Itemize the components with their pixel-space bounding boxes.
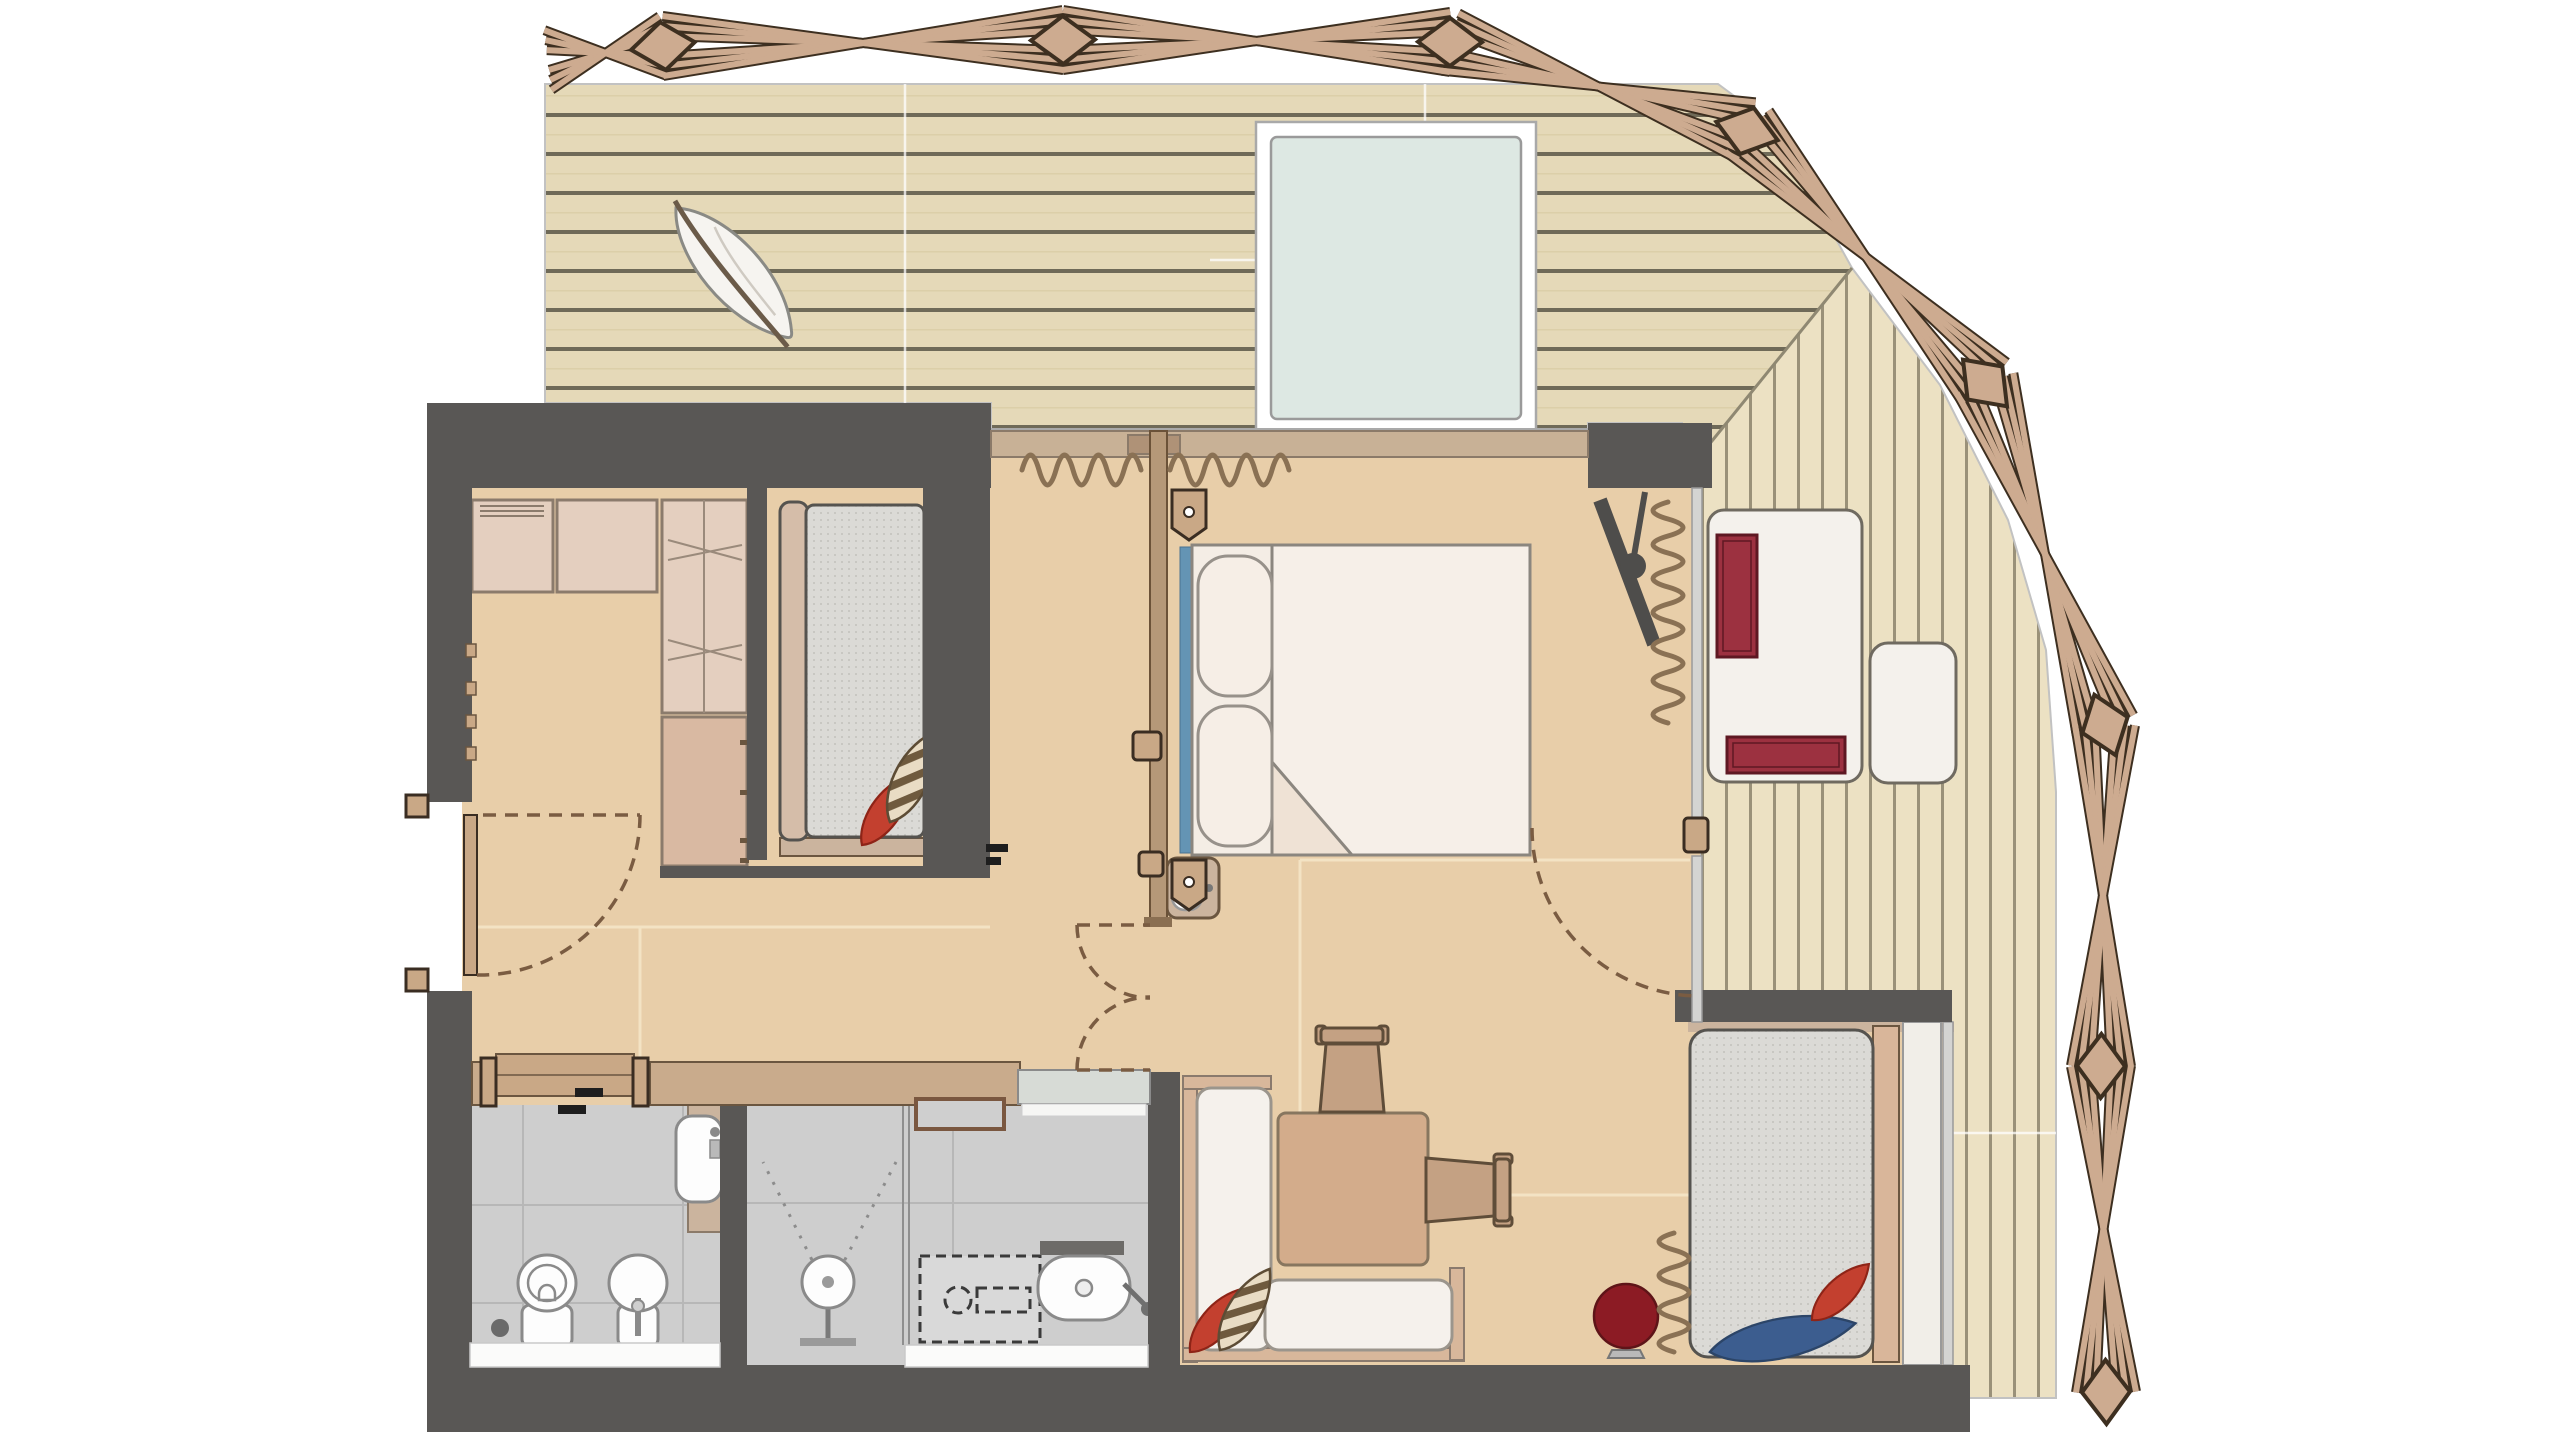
bath-threshold <box>905 1345 1148 1367</box>
terrace-glass-wall <box>1692 488 1702 1022</box>
wall-bath-right <box>1148 1072 1180 1367</box>
wall-pier-bednook <box>923 488 990 866</box>
wall-wc-divider <box>720 1105 747 1367</box>
headboard-blue-strip <box>1180 547 1192 853</box>
bidet-icon <box>609 1255 667 1347</box>
alcove-glass-wall <box>1943 1022 1953 1365</box>
floor-drain <box>491 1319 509 1337</box>
sleeping-alcove <box>1688 1022 1954 1370</box>
dresser <box>662 717 747 866</box>
wall-left-lower <box>427 991 472 1367</box>
cabinet-unit-2 <box>557 500 657 592</box>
toilet-icon <box>518 1255 576 1347</box>
skylight-glass-panel <box>1256 122 1536 434</box>
alcove-bed-frame <box>1873 1026 1899 1362</box>
chair-right <box>1426 1154 1512 1226</box>
alcove-bench <box>1903 1022 1941 1365</box>
floorplan-canvas <box>0 0 2560 1440</box>
single-bed-footboard <box>780 838 930 856</box>
dashed-bench <box>920 1256 1040 1342</box>
window-band-top <box>991 429 1588 457</box>
wall-stub-alcove <box>1675 990 1952 1022</box>
wc-threshold <box>470 1343 720 1367</box>
wall-left-upper <box>427 403 472 802</box>
pillow <box>1198 556 1272 696</box>
entry-door-leaf <box>464 815 477 975</box>
bath-shelf <box>1040 1241 1124 1255</box>
side-table <box>1870 643 1956 783</box>
wall-top-left <box>427 403 991 488</box>
wall-bottom <box>427 1365 1970 1432</box>
interior-window <box>1018 1070 1150 1104</box>
floorplan-drawing <box>0 0 2560 1440</box>
chair-top <box>1316 1026 1388 1112</box>
single-bed-headboard <box>780 502 808 840</box>
coffee-table <box>1278 1113 1428 1265</box>
wall-niche <box>916 1099 1004 1129</box>
wall-pier-wardrobe <box>747 488 767 860</box>
wall-pier-topright <box>1588 423 1712 488</box>
wall-baseboard-nook <box>660 866 990 878</box>
pillow <box>1198 706 1272 846</box>
cabinet-unit <box>472 500 553 592</box>
